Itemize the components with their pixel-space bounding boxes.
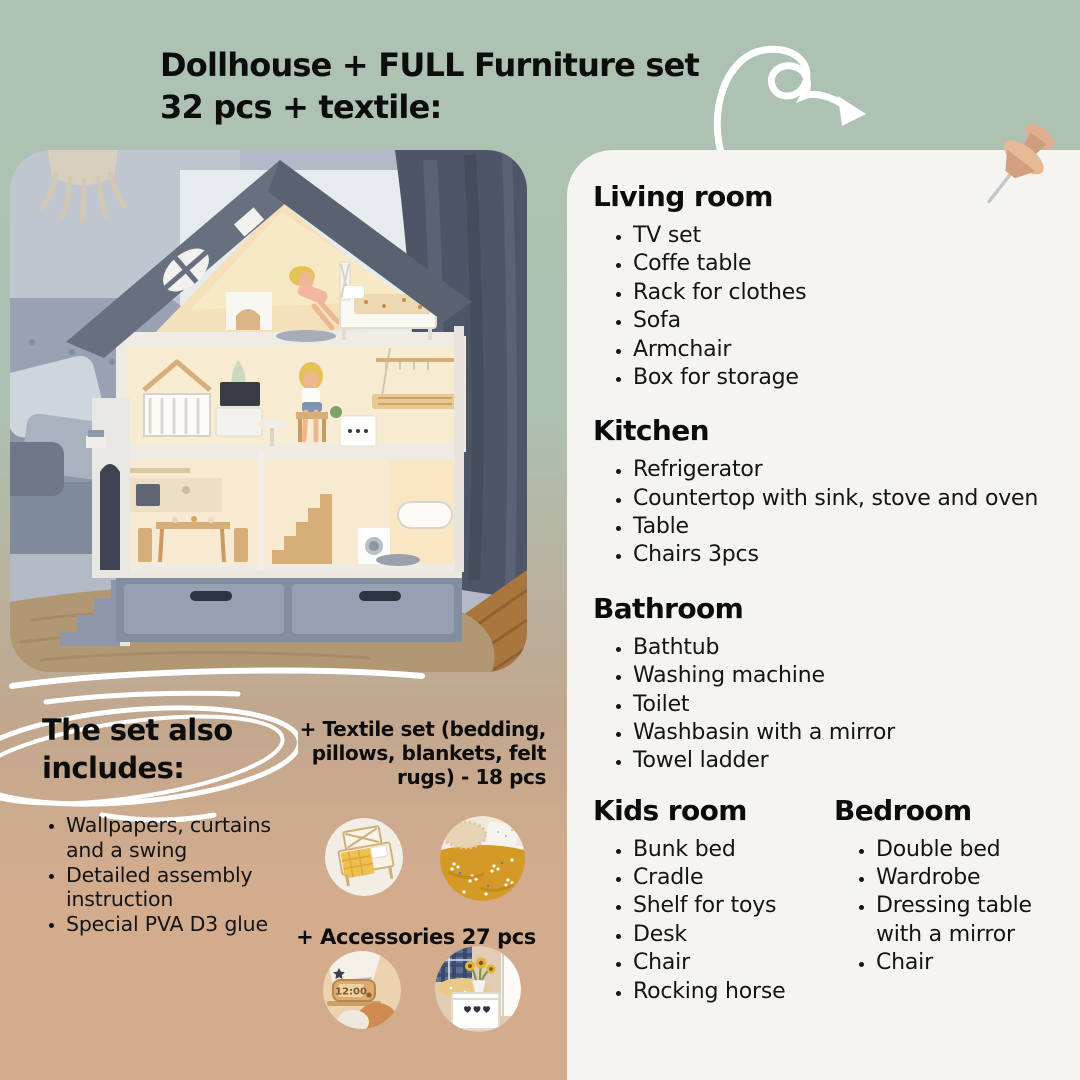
list-item: Washbasin with a mirror xyxy=(633,719,1064,747)
textile-line: + Textile set (bedding, xyxy=(246,717,546,741)
infographic-canvas: Dollhouse + FULL Furniture set 32 pcs + … xyxy=(0,0,1080,1080)
list-item: Chair xyxy=(876,949,1064,977)
list-item: Coffe table xyxy=(633,250,1064,278)
section-heading-kitchen: Kitchen xyxy=(593,414,1064,447)
list-item: Refrigerator xyxy=(633,456,1064,484)
list-item: Countertop with sink, stove and oven xyxy=(633,485,1064,513)
section-heading-kids-room: Kids room xyxy=(593,794,825,827)
list-item: Cradle xyxy=(633,864,825,892)
list-item: Box for storage xyxy=(633,364,1064,392)
clock-time: 12:00 xyxy=(335,987,367,998)
list-item: Table xyxy=(633,513,1064,541)
kids-bedroom-columns: Kids room Bunk bed Cradle Shelf for toys… xyxy=(593,794,1064,1006)
list-item: Armchair xyxy=(633,336,1064,364)
list-item: Wallpapers, curtains and a swing xyxy=(66,813,302,862)
list-item: Desk xyxy=(633,921,825,949)
list-item: Bathtub xyxy=(633,634,1064,662)
accessories-label: + Accessories 27 pcs xyxy=(282,925,550,949)
list-item: Chair xyxy=(633,949,825,977)
list-item: Bunk bed xyxy=(633,836,825,864)
list-item: Special PVA D3 glue xyxy=(66,912,302,937)
section-heading-bathroom: Bathroom xyxy=(593,592,1064,625)
section-heading-bedroom: Bedroom xyxy=(834,794,1064,827)
list-item: Detailed assembly instruction xyxy=(66,863,302,912)
bathroom-list: Bathtub Washing machine Toilet Washbasin… xyxy=(593,634,1064,776)
list-item: Wardrobe xyxy=(876,864,1064,892)
kitchen-list: Refrigerator Countertop with sink, stove… xyxy=(593,456,1064,570)
accessory-photo-clock: 12:00 xyxy=(323,951,401,1029)
textile-photo-fabric xyxy=(440,816,525,901)
kids-room-list: Bunk bed Cradle Shelf for toys Desk Chai… xyxy=(593,836,825,1006)
list-item: Sofa xyxy=(633,307,1064,335)
list-item: Shelf for toys xyxy=(633,892,825,920)
list-item: Towel ladder xyxy=(633,747,1064,775)
textile-line: pillows, blankets, felt xyxy=(246,741,546,765)
list-item: Double bed xyxy=(876,836,1064,864)
dollhouse-photo-illustration xyxy=(10,150,527,672)
living-room-list: TV set Coffe table Rack for clothes Sofa… xyxy=(593,222,1064,392)
kids-room-column: Kids room Bunk bed Cradle Shelf for toys… xyxy=(593,794,825,1006)
list-item: Washing machine xyxy=(633,662,1064,690)
textile-photo-bed xyxy=(325,818,403,896)
includes-list: Wallpapers, curtains and a swing Detaile… xyxy=(42,813,302,936)
list-item: TV set xyxy=(633,222,1064,250)
bedroom-column: Bedroom Double bed Wardrobe Dressing tab… xyxy=(834,794,1064,1006)
list-item: Rack for clothes xyxy=(633,279,1064,307)
textile-line: rugs) - 18 pcs xyxy=(246,765,546,789)
title-line-1: Dollhouse + FULL Furniture set xyxy=(160,44,760,86)
arrow-doodle-icon xyxy=(706,40,896,164)
title-line-2: 32 pcs + textile: xyxy=(160,86,760,128)
list-item: Rocking horse xyxy=(633,978,825,1006)
push-pin-icon xyxy=(945,116,1075,218)
list-item: Chairs 3pcs xyxy=(633,541,1064,569)
list-item: Dressing table with a mirror xyxy=(876,892,1064,949)
underline-doodle-icon xyxy=(6,664,430,710)
list-item: Toilet xyxy=(633,691,1064,719)
bedroom-list: Double bed Wardrobe Dressing table with … xyxy=(834,836,1064,978)
furniture-list-panel: Living room TV set Coffe table Rack for … xyxy=(567,150,1080,1080)
textile-set-label: + Textile set (bedding, pillows, blanket… xyxy=(246,717,546,789)
accessory-photo-chest xyxy=(435,946,521,1032)
page-title: Dollhouse + FULL Furniture set 32 pcs + … xyxy=(160,44,760,128)
dollhouse-photo xyxy=(10,150,527,672)
